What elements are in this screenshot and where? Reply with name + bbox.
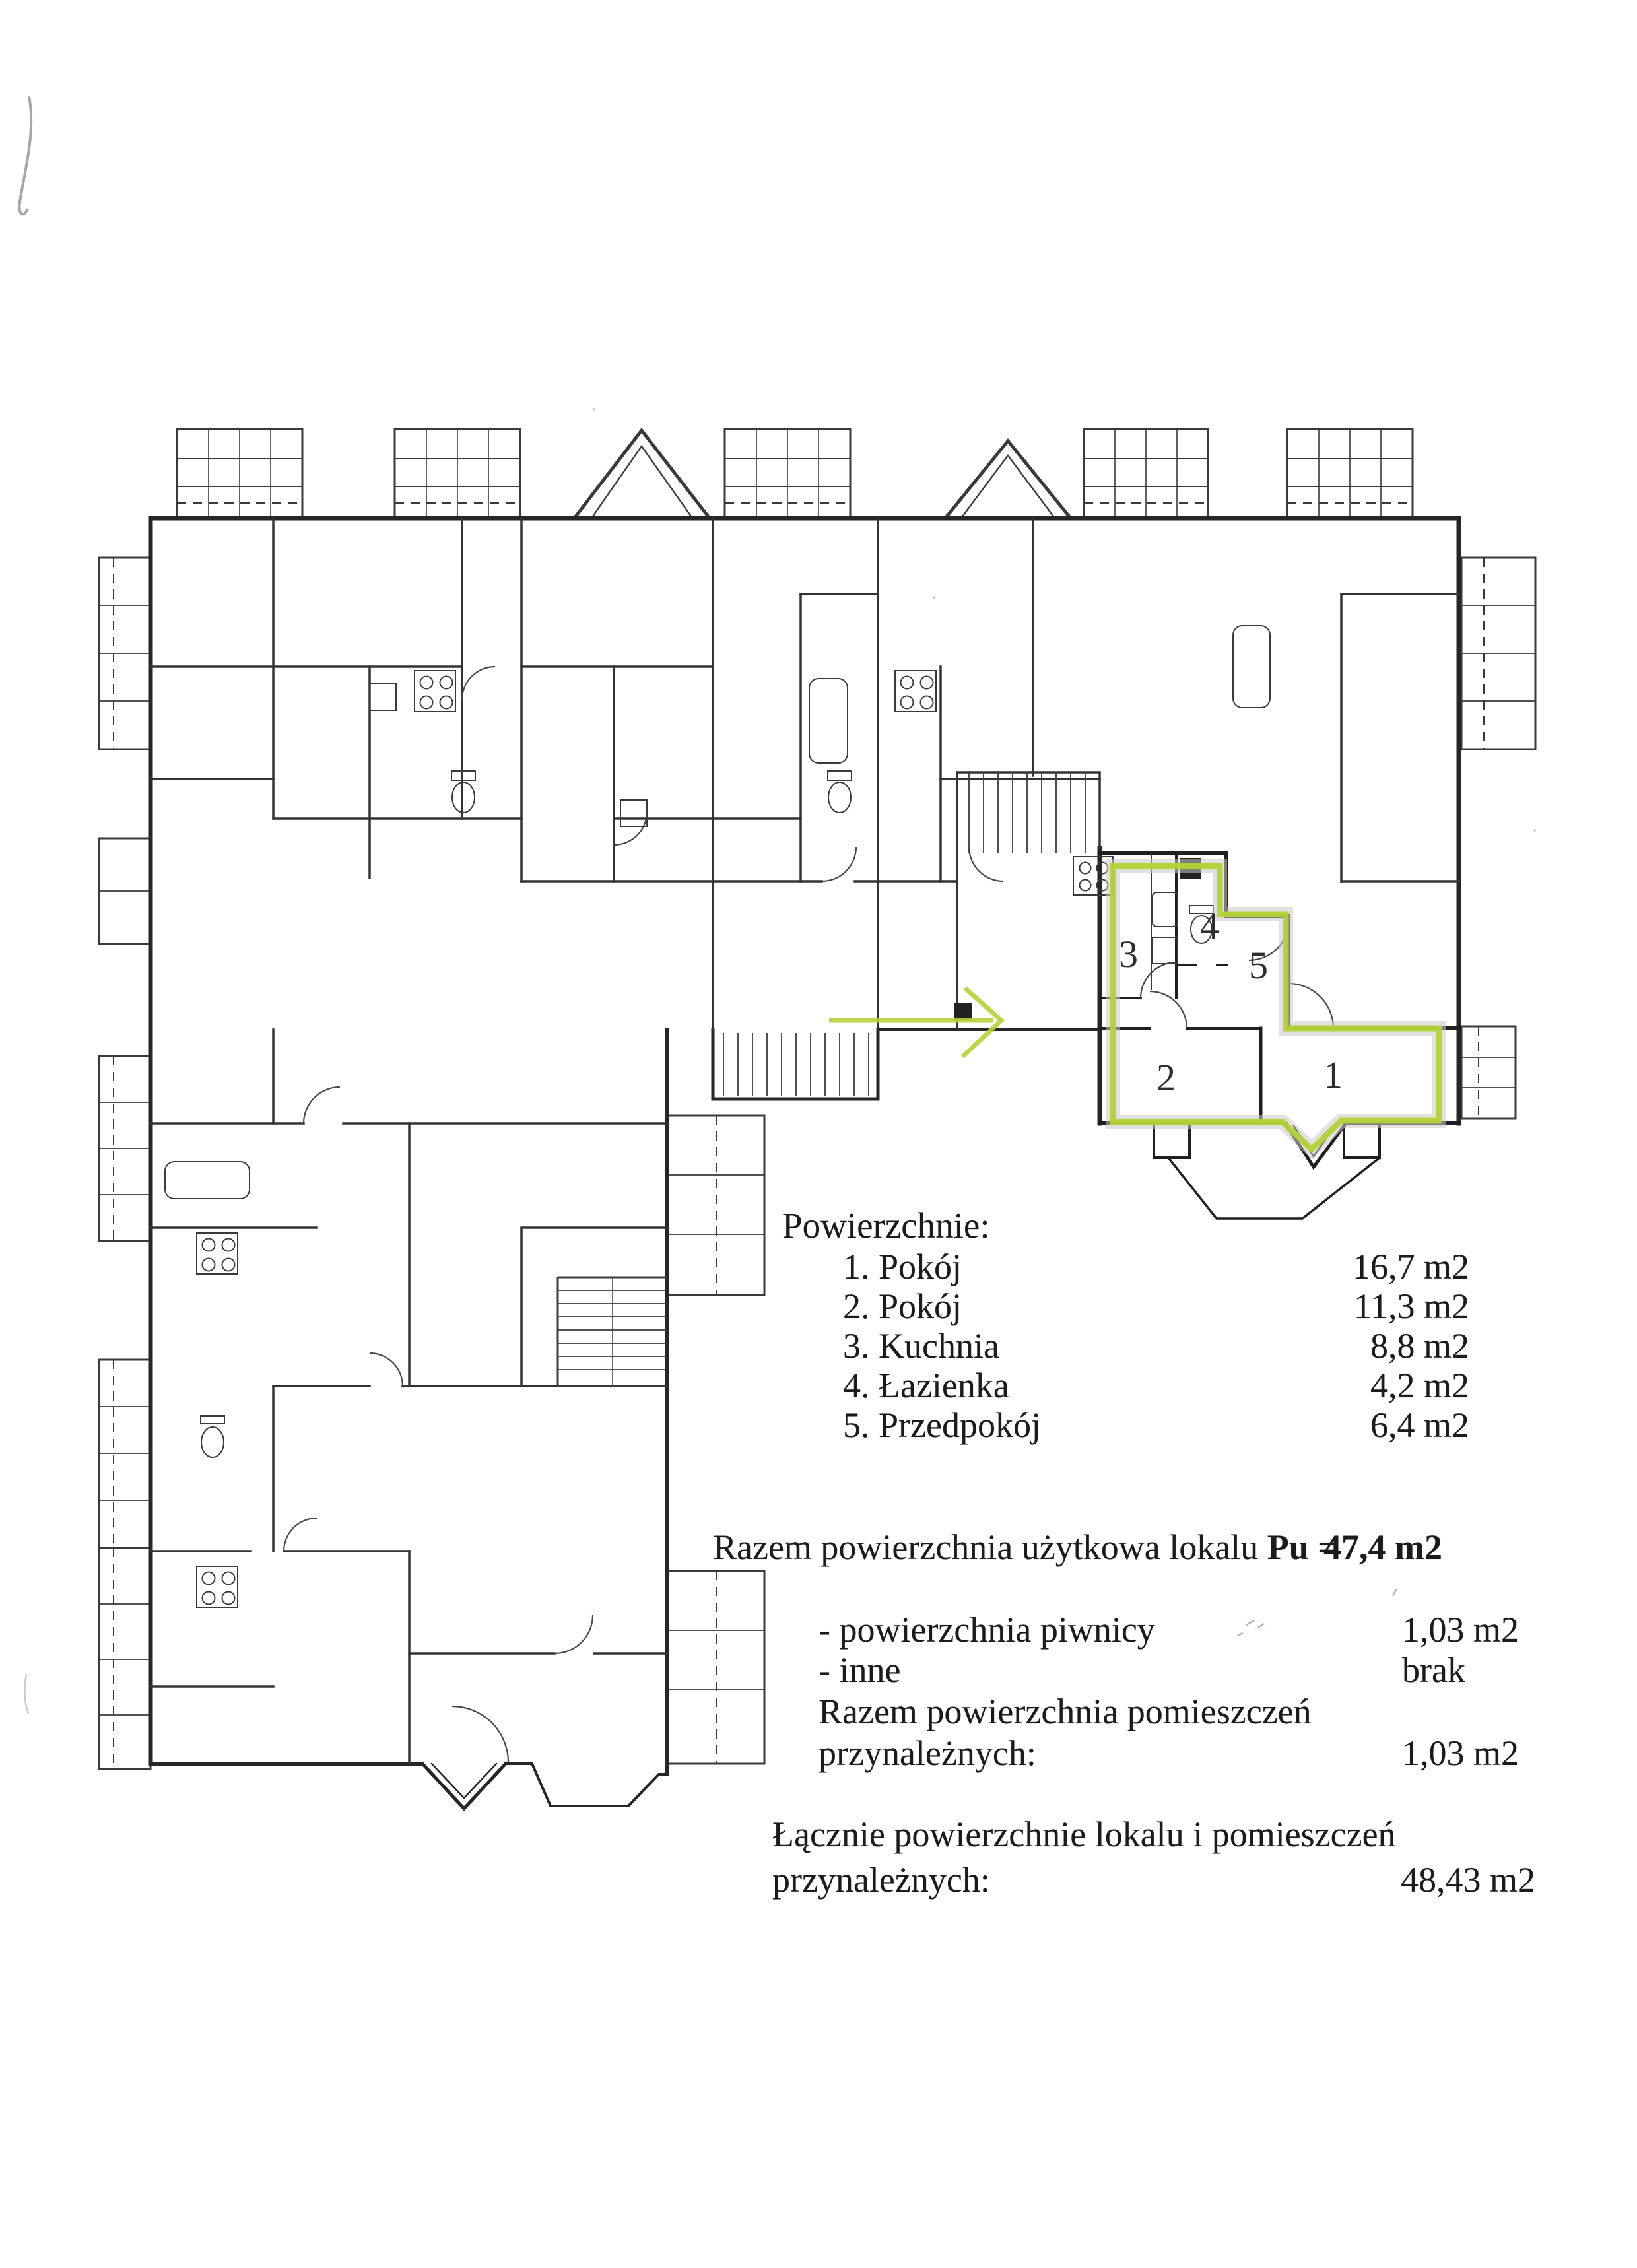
stove-icon xyxy=(197,1233,238,1274)
annex-total-line2: przynależnych: 1,03 m2 xyxy=(818,1735,1469,1772)
bathtub-icon xyxy=(809,679,848,763)
highlight-arrow-icon xyxy=(829,988,1001,1057)
area-label: 1. Pokój xyxy=(843,1247,962,1286)
area-row: 2. Pokój 11,3 m2 xyxy=(843,1288,1469,1325)
left-balconies xyxy=(99,558,150,1769)
window-bay xyxy=(99,838,150,944)
apartment-hatch-band xyxy=(1113,866,1439,1149)
balcony xyxy=(395,429,520,518)
sink-icon xyxy=(620,800,647,826)
balcony xyxy=(725,429,850,518)
room-number-3: 3 xyxy=(1119,933,1138,976)
toilet-icon xyxy=(451,771,475,813)
balcony xyxy=(667,1116,764,1295)
area-value: 11,3 m2 xyxy=(1354,1288,1469,1325)
annex-total-line1: Razem powierzchnia pomieszczeń xyxy=(818,1693,1469,1731)
door-threshold-marks xyxy=(954,858,1201,1020)
balcony xyxy=(667,1571,764,1764)
annex-row: - inne brak xyxy=(818,1651,1469,1689)
sink-icon xyxy=(1153,892,1178,927)
room-number-4: 4 xyxy=(1200,904,1219,947)
area-row: 5. Przedpokój 6,4 m2 xyxy=(843,1407,1469,1444)
area-value: 16,7 m2 xyxy=(1353,1248,1469,1286)
total-value: 47,4 m2 xyxy=(1323,1529,1442,1566)
right-balconies xyxy=(667,558,1535,1764)
area-label: 3. Kuchnia xyxy=(843,1326,999,1366)
gable-bay-left xyxy=(574,430,710,518)
toilet-icon xyxy=(201,1416,224,1457)
toilet-icon xyxy=(828,771,852,813)
stove-icon xyxy=(197,1566,238,1607)
annex-label: - inne xyxy=(818,1650,900,1690)
floor-plan-drawing: 1 2 3 4 5 xyxy=(0,0,1637,2268)
top-balconies xyxy=(177,429,1413,518)
area-value: 4,2 m2 xyxy=(1370,1367,1469,1405)
area-row: 3. Kuchnia 8,8 m2 xyxy=(843,1327,1469,1365)
balcony xyxy=(1461,558,1535,749)
annex-value: brak xyxy=(1402,1651,1465,1689)
grand-total-value: 48,43 m2 xyxy=(1401,1861,1535,1899)
scanned-floor-plan-page: 1 2 3 4 5 Powierzchnie: 1. Pokój 16,7 m2… xyxy=(0,0,1637,2268)
staircase-entry-icon xyxy=(969,772,1085,853)
area-value: 8,8 m2 xyxy=(1370,1327,1469,1365)
balcony xyxy=(1287,429,1413,518)
stove-icon xyxy=(895,671,936,712)
room-number-2: 2 xyxy=(1156,1056,1176,1099)
annex-row: - powierzchnia piwnicy 1,03 m2 xyxy=(818,1611,1469,1649)
annex-total-value: 1,03 m2 xyxy=(1402,1735,1519,1772)
area-label: 2. Pokój xyxy=(843,1286,962,1326)
bathtub-icon xyxy=(165,1162,250,1199)
area-label: 5. Przedpokój xyxy=(843,1405,1041,1445)
scan-pen-mark-icon xyxy=(19,96,31,1714)
bathtub-icon xyxy=(1233,626,1270,708)
balcony-highlighted-apartment xyxy=(1461,1026,1516,1119)
total-usable-area-row: Razem powierzchnia użytkowa lokalu Pu = … xyxy=(713,1529,1469,1566)
grand-total-line1: Łącznie powierzchnie lokalu i pomieszcze… xyxy=(772,1816,1469,1853)
balcony xyxy=(99,1360,150,1548)
area-value: 6,4 m2 xyxy=(1370,1407,1469,1444)
apartment-bay-window xyxy=(1154,1123,1380,1218)
entrance-bay xyxy=(422,1764,506,1809)
staircase-lower-icon xyxy=(558,1277,667,1386)
area-label: 4. Łazienka xyxy=(843,1366,1009,1405)
balcony xyxy=(99,1056,150,1241)
balcony xyxy=(99,558,150,749)
area-row: 1. Pokój 16,7 m2 xyxy=(843,1248,1469,1286)
total-label: Razem powierzchnia użytkowa lokalu xyxy=(713,1527,1267,1567)
balcony xyxy=(177,429,302,518)
areas-title: Powierzchnie: xyxy=(782,1207,990,1245)
stove-icon xyxy=(415,671,455,712)
annex-label: - powierzchnia piwnicy xyxy=(818,1610,1155,1650)
grand-total-line2: przynależnych: 48,43 m2 xyxy=(772,1861,1469,1899)
cabinet-icon xyxy=(1153,937,1178,964)
sink-icon xyxy=(370,684,396,710)
gable-bay-right xyxy=(945,441,1071,518)
room-number-5: 5 xyxy=(1249,944,1268,987)
balcony xyxy=(99,1548,150,1769)
staircase-mid-icon xyxy=(723,1033,869,1096)
annex-value: 1,03 m2 xyxy=(1402,1611,1519,1649)
area-row: 4. Łazienka 4,2 m2 xyxy=(843,1367,1469,1405)
interior-walls-lower-wing xyxy=(150,1030,667,1764)
balcony xyxy=(1084,429,1208,518)
room-number-labels: 1 2 3 4 5 xyxy=(1119,904,1343,1099)
room-number-1: 1 xyxy=(1323,1053,1343,1096)
scan-specks xyxy=(593,408,1536,1317)
